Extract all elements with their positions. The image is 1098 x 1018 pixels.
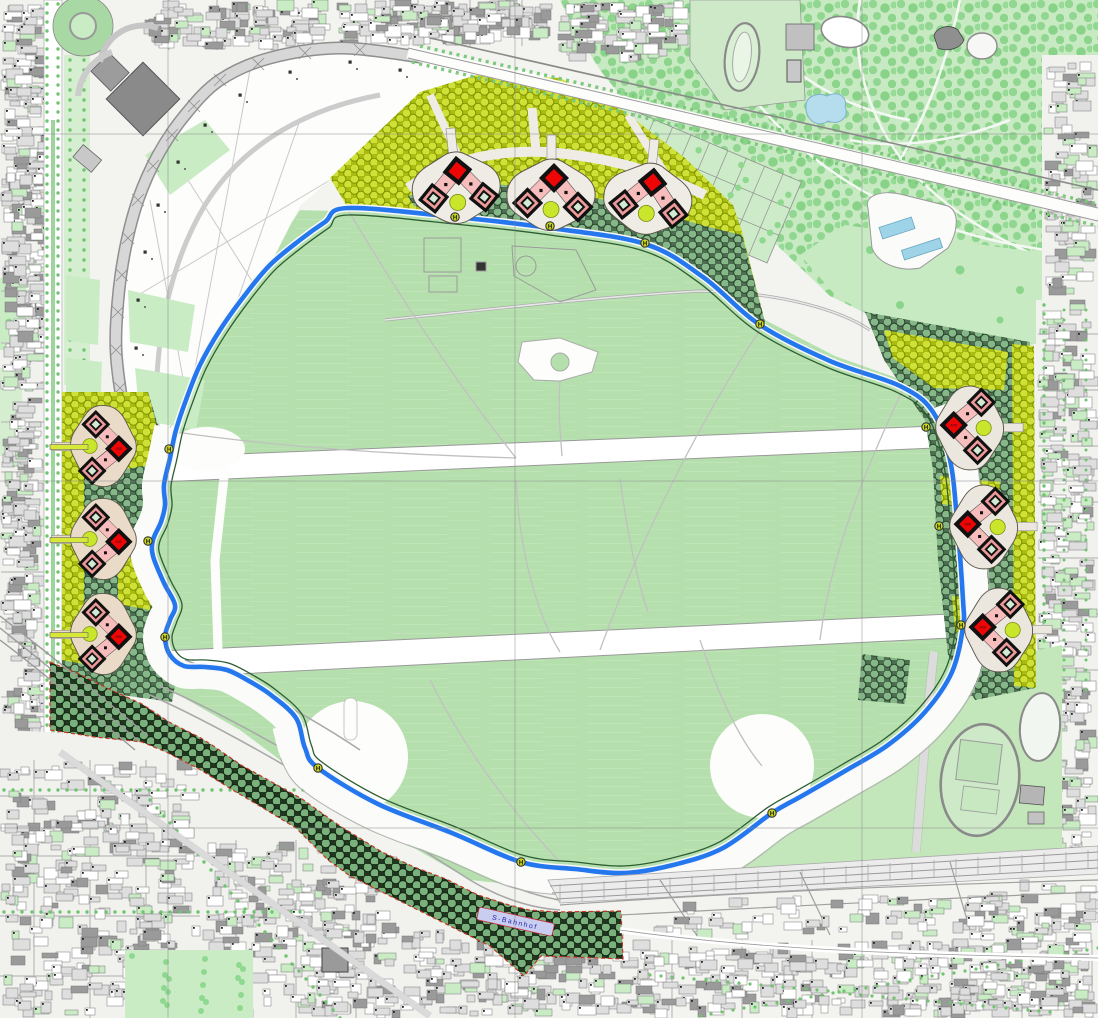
svg-text:H: H: [316, 767, 320, 773]
svg-text:H: H: [959, 624, 963, 630]
svg-text:XXX: XXX: [115, 447, 122, 451]
svg-text:H: H: [548, 225, 552, 231]
svg-text:H: H: [758, 323, 762, 329]
svg-text:XXX: XXX: [979, 626, 987, 630]
svg-text:XXX: XXX: [115, 635, 122, 639]
svg-text:XXX: XXX: [964, 523, 972, 527]
svg-text:H: H: [937, 525, 941, 531]
svg-text:XXX: XXX: [950, 424, 958, 428]
svg-text:H: H: [924, 426, 928, 432]
svg-text:H: H: [146, 540, 150, 546]
svg-text:H: H: [453, 216, 457, 222]
svg-text:H: H: [770, 812, 774, 818]
svg-text:H: H: [519, 861, 523, 867]
svg-text:H: H: [643, 242, 647, 248]
svg-text:H: H: [163, 636, 167, 642]
svg-text:H: H: [167, 448, 171, 454]
svg-text:XXX: XXX: [115, 540, 122, 544]
